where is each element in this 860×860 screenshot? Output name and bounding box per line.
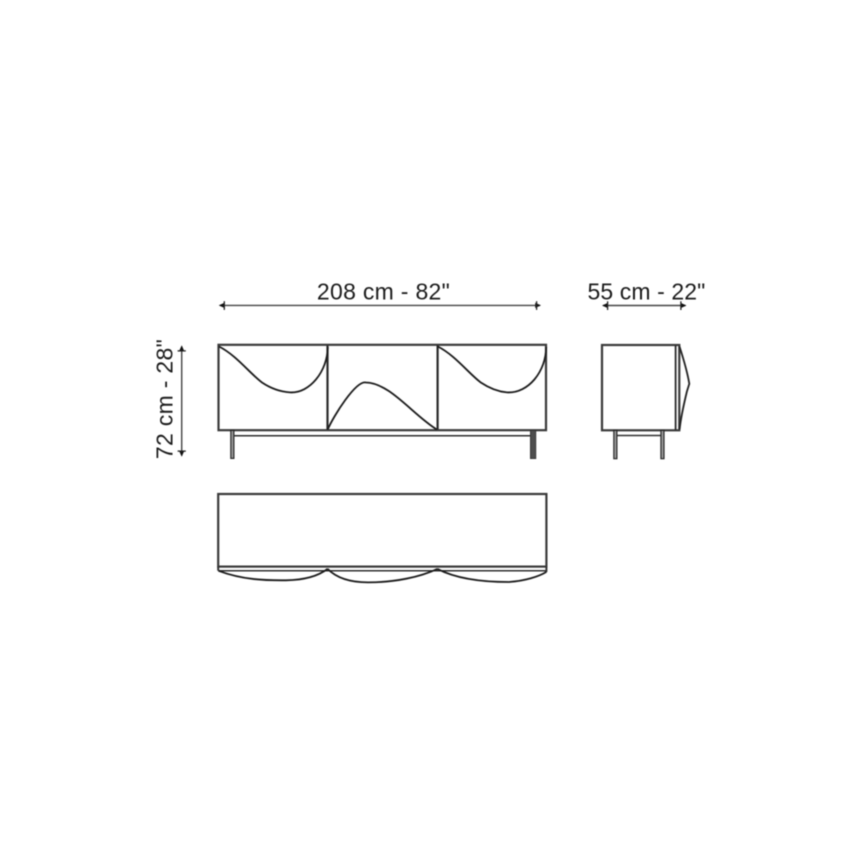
svg-text:55 cm - 22": 55 cm - 22": [588, 279, 706, 305]
svg-text:208 cm - 82": 208 cm - 82": [317, 279, 450, 305]
svg-text:72 cm - 28": 72 cm - 28": [152, 339, 178, 459]
